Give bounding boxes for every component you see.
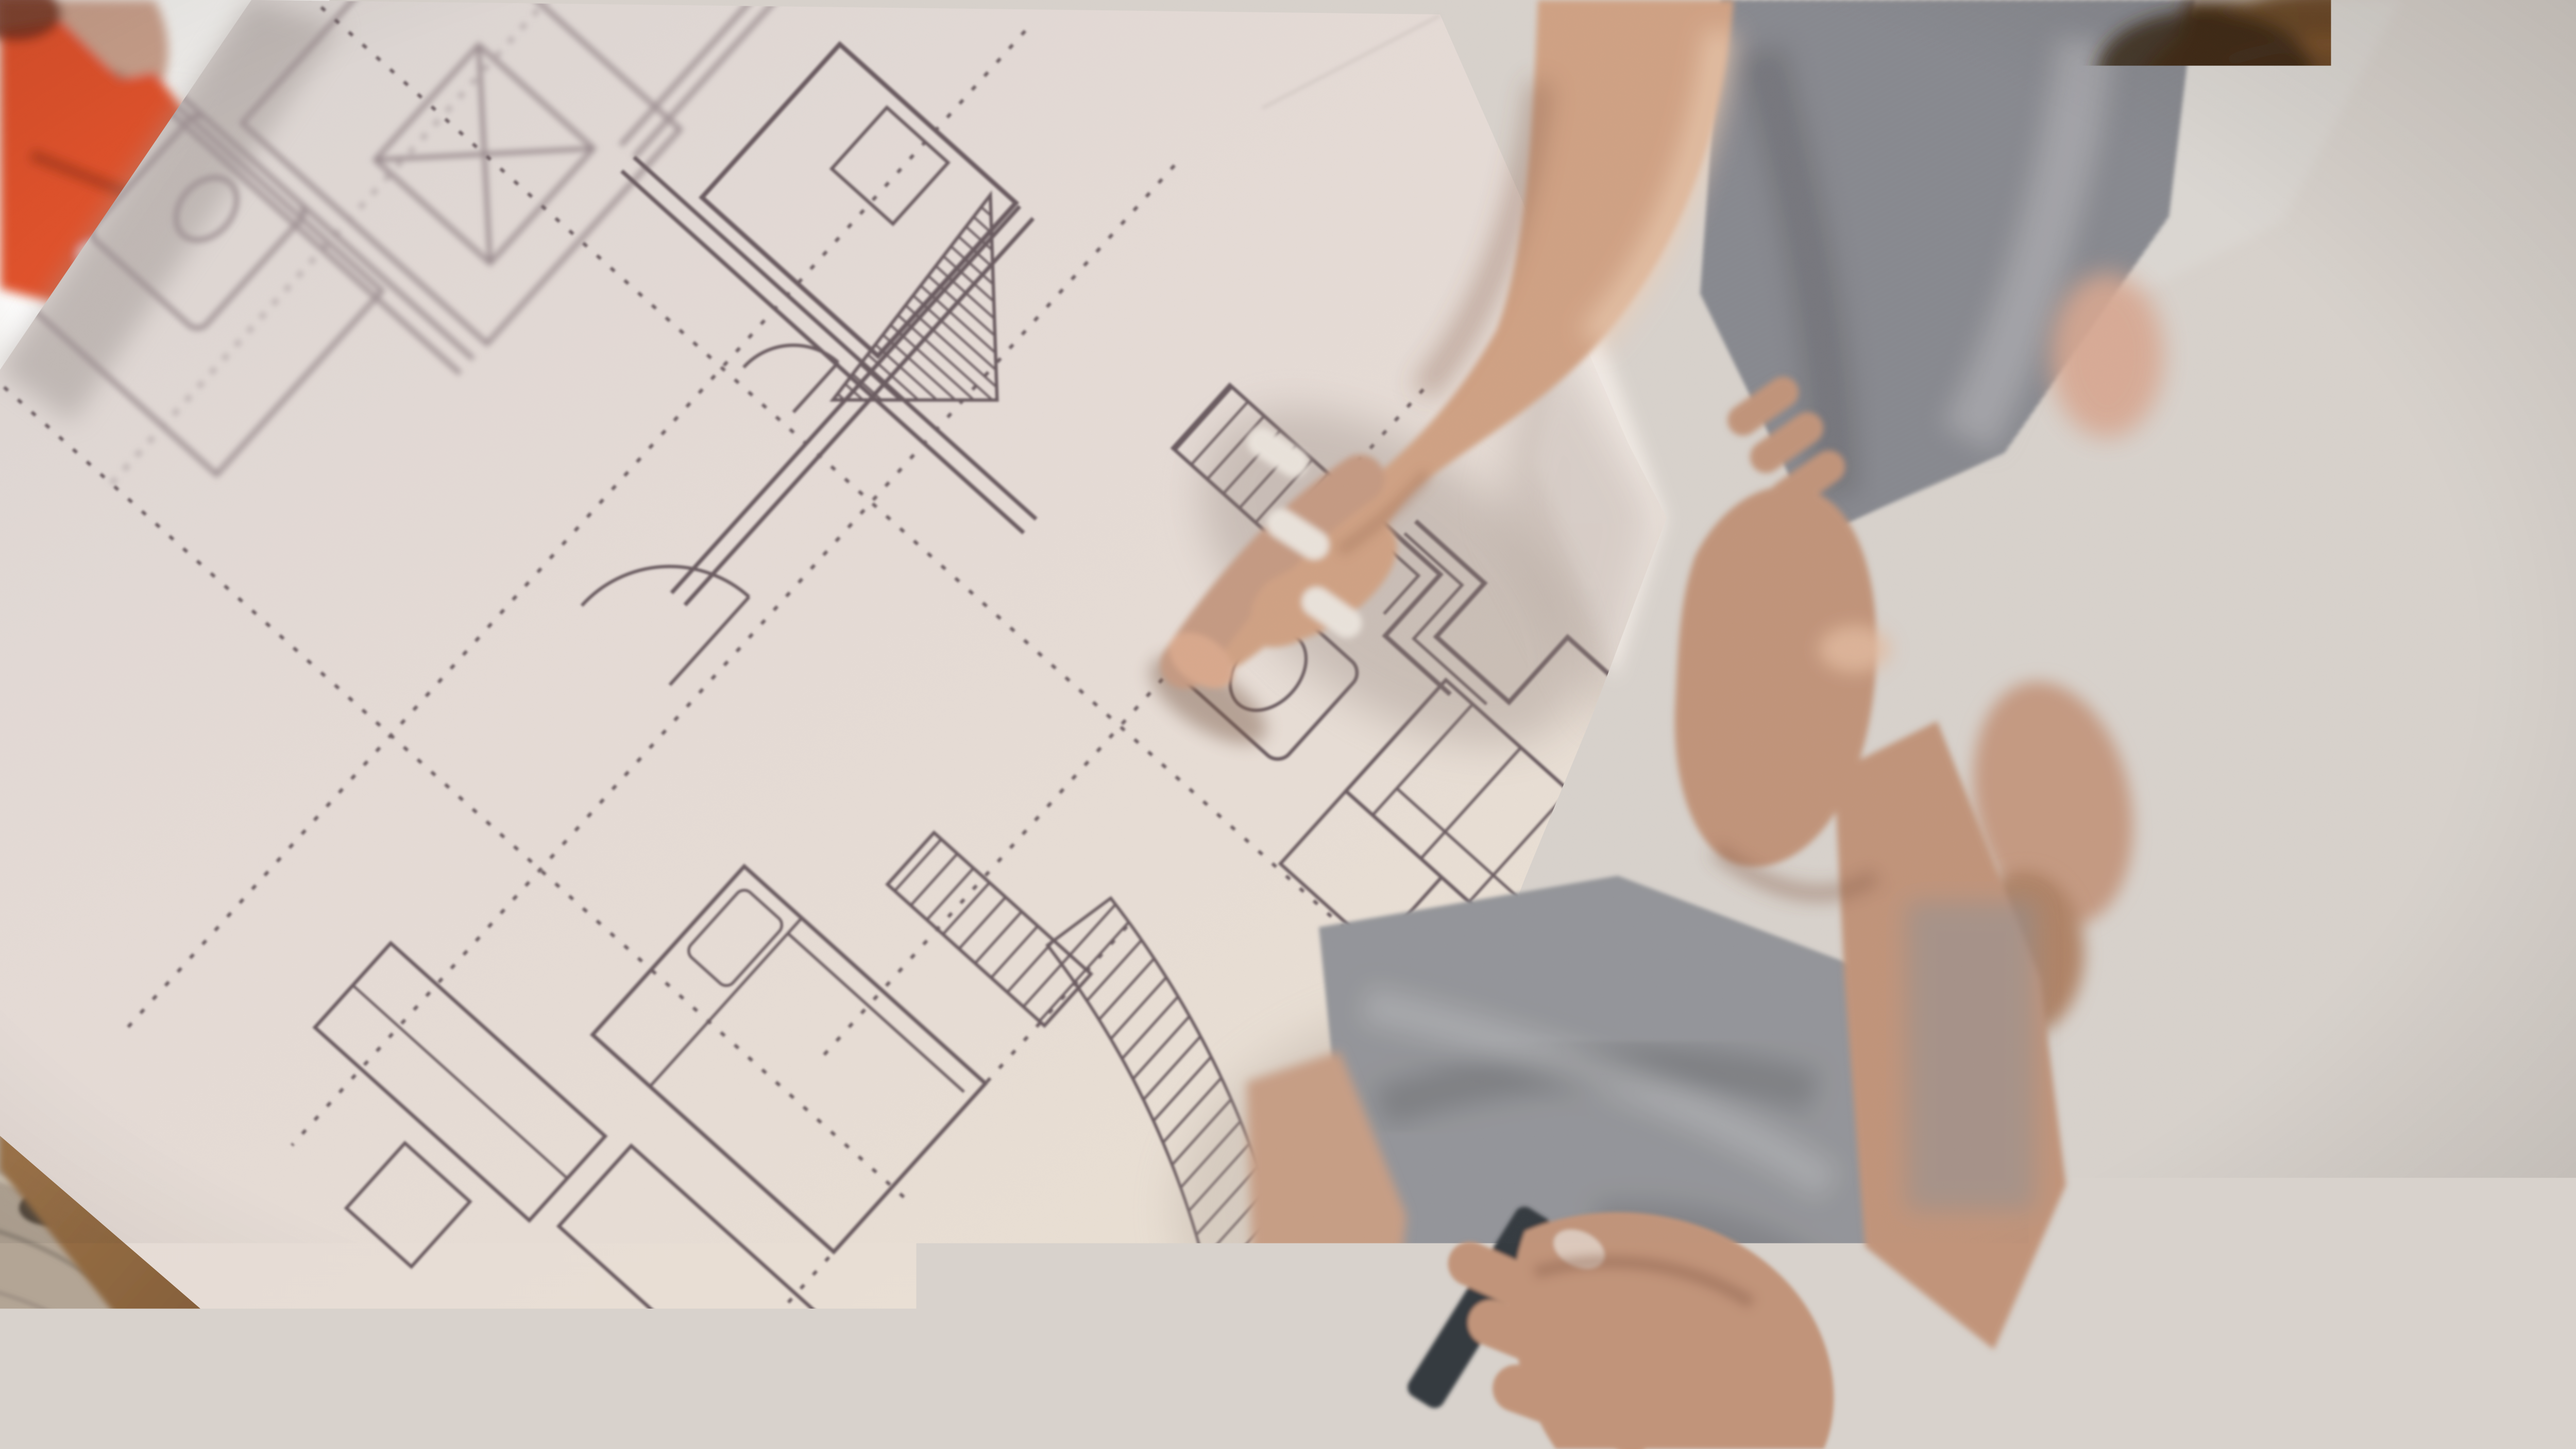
film-grain	[0, 0, 2576, 1449]
photo-scene	[0, 0, 2576, 1449]
scene-canvas	[0, 0, 2576, 1449]
